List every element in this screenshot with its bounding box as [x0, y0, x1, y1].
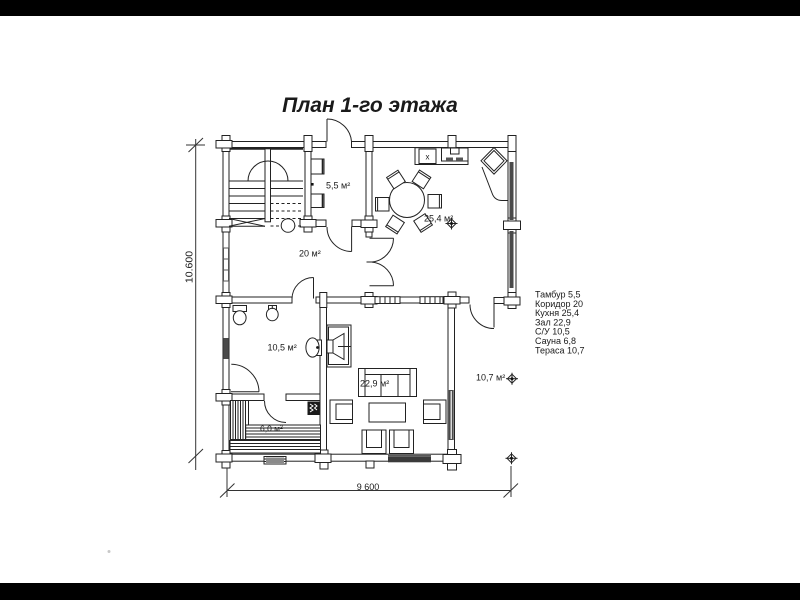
svg-text:x: x [426, 153, 430, 162]
svg-text:10,7 м²: 10,7 м² [476, 373, 505, 383]
svg-text:6,0 м²: 6,0 м² [260, 424, 283, 434]
svg-text:План 1-го этажа: План 1-го этажа [282, 94, 458, 117]
svg-text:Тераса 10,7: Тераса 10,7 [535, 345, 585, 355]
svg-text:22,9 м²: 22,9 м² [360, 379, 389, 389]
svg-text:25,4 м²: 25,4 м² [424, 214, 453, 224]
svg-text:5,5 м²: 5,5 м² [326, 181, 350, 191]
svg-text:10,5 м²: 10,5 м² [268, 343, 297, 353]
svg-text:10.600: 10.600 [184, 251, 196, 283]
svg-text:9 600: 9 600 [357, 482, 380, 492]
svg-text:20 м²: 20 м² [299, 249, 321, 259]
